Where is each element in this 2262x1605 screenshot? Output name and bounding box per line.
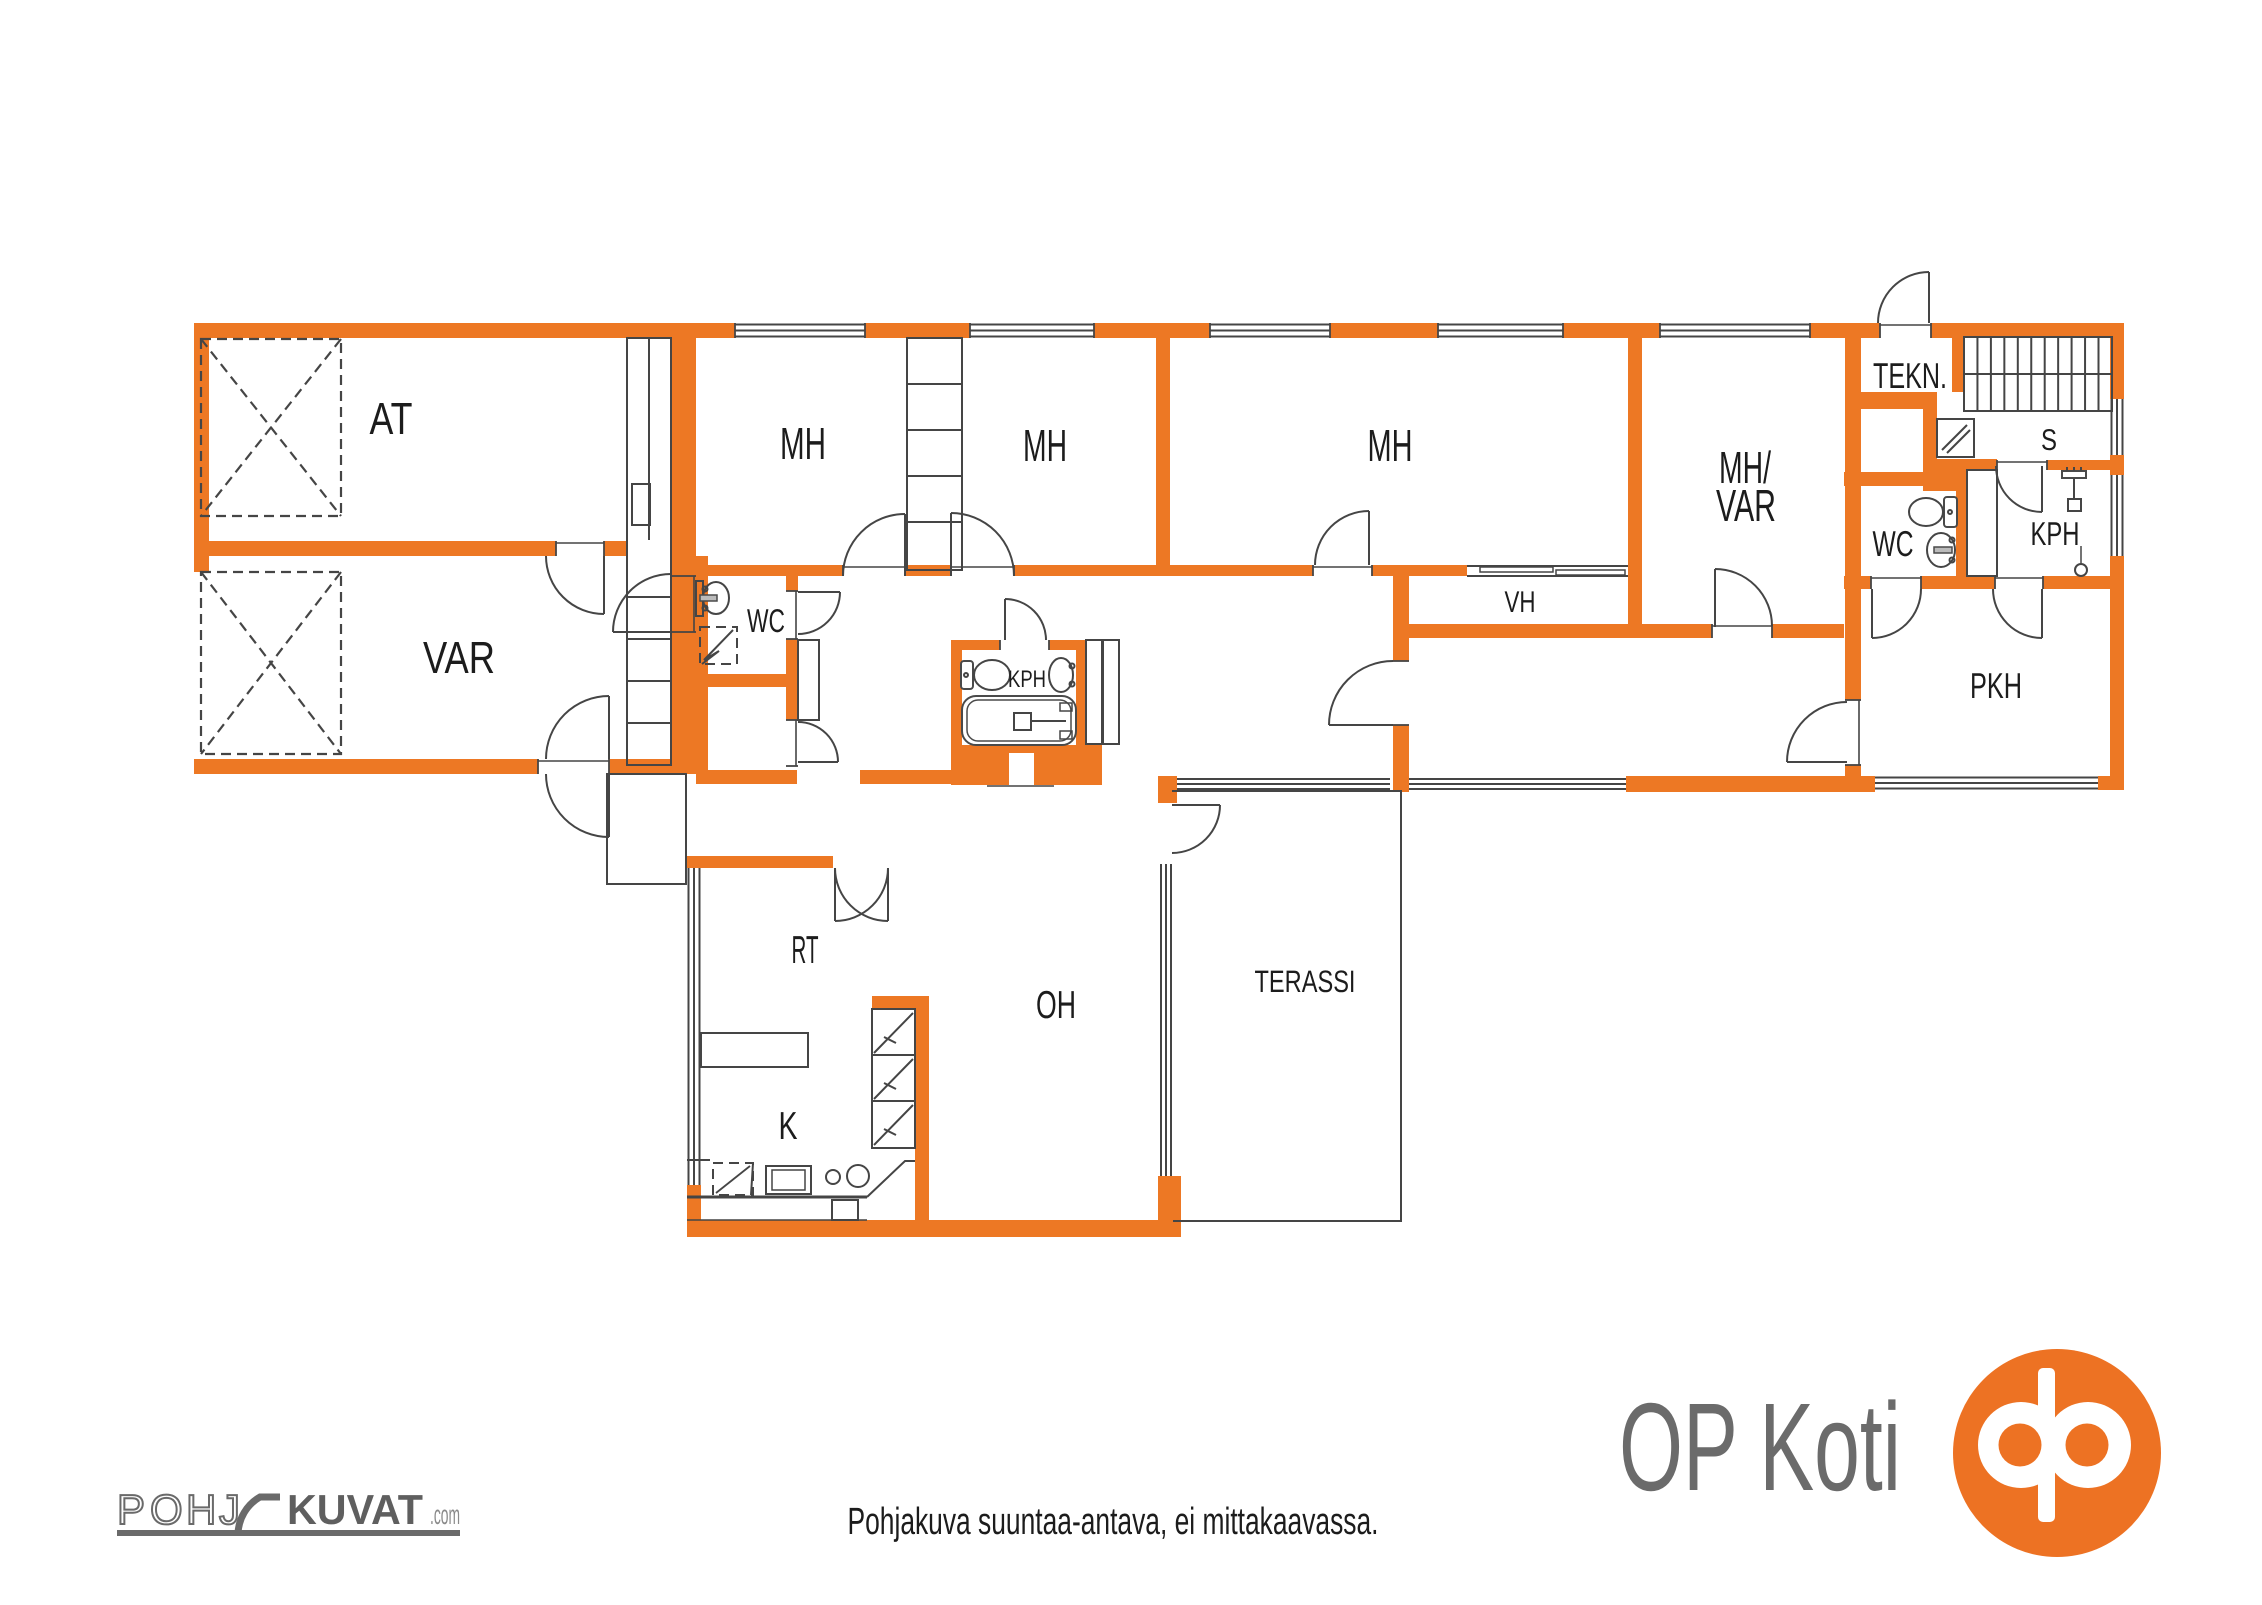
svg-text:KPH: KPH bbox=[2031, 515, 2080, 552]
svg-text:MH: MH bbox=[1023, 420, 1067, 471]
svg-text:KPH: KPH bbox=[1008, 666, 1046, 693]
svg-text:.com: .com bbox=[430, 1500, 460, 1530]
svg-text:VAR: VAR bbox=[423, 632, 495, 683]
svg-text:TEKN.: TEKN. bbox=[1873, 355, 1947, 396]
svg-text:VH: VH bbox=[1505, 586, 1536, 619]
svg-text:P: P bbox=[117, 1486, 145, 1533]
svg-text:WC: WC bbox=[1873, 523, 1914, 564]
svg-text:OH: OH bbox=[1036, 984, 1076, 1027]
svg-text:H: H bbox=[186, 1486, 216, 1533]
svg-text:WC: WC bbox=[747, 602, 785, 639]
svg-text:O: O bbox=[150, 1486, 183, 1533]
svg-text:OP Koti: OP Koti bbox=[1619, 1378, 1901, 1517]
svg-text:RT: RT bbox=[792, 929, 819, 972]
svg-text:MH: MH bbox=[1368, 420, 1413, 471]
svg-text:AT: AT bbox=[370, 393, 413, 444]
svg-text:Pohjakuva suuntaa-antava, ei m: Pohjakuva suuntaa-antava, ei mittakaavas… bbox=[848, 1501, 1379, 1543]
svg-text:S: S bbox=[2041, 424, 2057, 457]
svg-text:TERASSI: TERASSI bbox=[1255, 964, 1356, 999]
svg-text:KUVAT: KUVAT bbox=[287, 1486, 423, 1533]
svg-text:MH: MH bbox=[780, 418, 826, 469]
svg-text:K: K bbox=[779, 1105, 798, 1148]
svg-text:VAR: VAR bbox=[1716, 480, 1776, 531]
svg-text:PKH: PKH bbox=[1970, 665, 2022, 706]
